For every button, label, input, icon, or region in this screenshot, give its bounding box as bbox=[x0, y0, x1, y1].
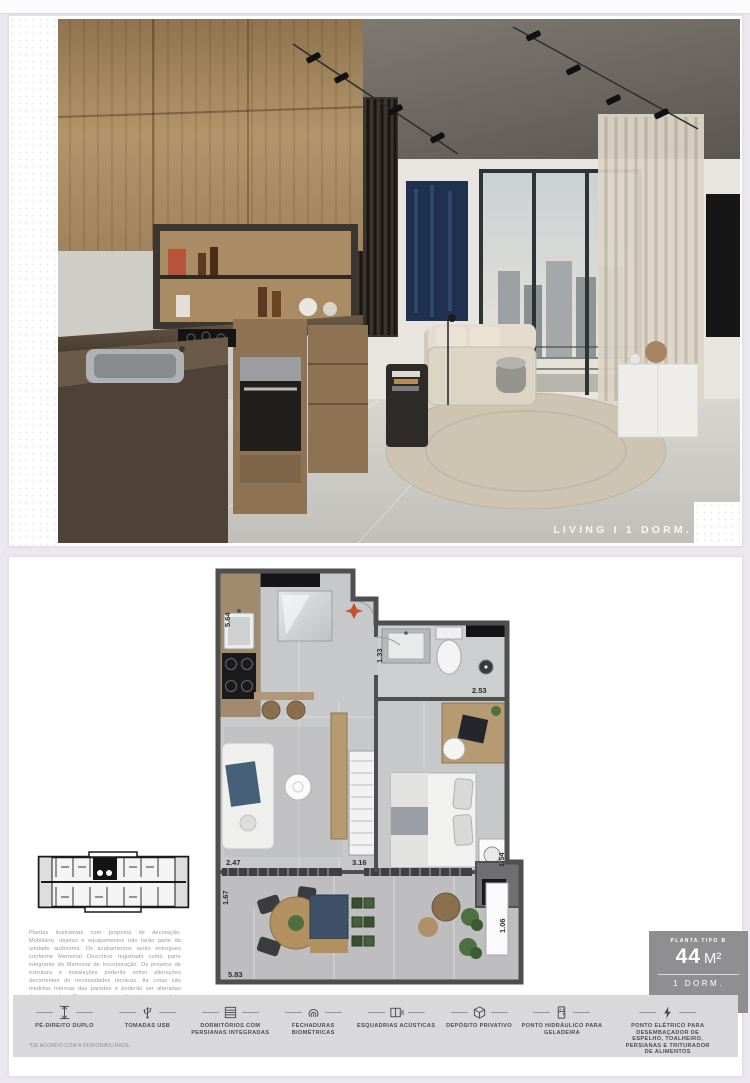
living-room-render: LIVING I 1 DORM. bbox=[58, 19, 740, 543]
cooktop-plan bbox=[222, 653, 256, 699]
area-value: 44M² bbox=[649, 946, 748, 970]
halftone-left-margin bbox=[9, 16, 58, 546]
highlighted-unit bbox=[93, 858, 117, 880]
dim-bath: 1.33 bbox=[375, 648, 384, 663]
desk-chair bbox=[443, 738, 465, 760]
amenity-ponto-eletrico: PONTO ELÉTRICO PARA DESEMBAÇADOR DE ESPE… bbox=[603, 1003, 732, 1056]
toilet bbox=[436, 627, 462, 674]
floorplan-card: 5.64 1.33 2.53 2.47 3.16 1.54 1.67 5.83 … bbox=[8, 556, 743, 1077]
gray-stool bbox=[496, 357, 526, 393]
photo-caption: LIVING I 1 DORM. bbox=[553, 524, 692, 536]
round-side-table bbox=[432, 893, 460, 921]
living-room-photo: LIVING I 1 DORM. bbox=[58, 19, 740, 543]
daybed bbox=[310, 895, 348, 953]
stool bbox=[262, 701, 280, 719]
navy-artwork bbox=[406, 181, 468, 321]
living-area bbox=[222, 713, 347, 857]
shower-niche bbox=[466, 625, 505, 637]
halftone-corner bbox=[694, 502, 740, 544]
kitchen-island bbox=[58, 337, 228, 543]
refrigerator-water-point-icon bbox=[554, 1005, 569, 1020]
amenity-persianas-integradas: DORMITÓRIOS COM PERSIANAS INTEGRADAS bbox=[189, 1003, 272, 1036]
usb-outlet-icon bbox=[140, 1005, 155, 1020]
dim-bedroom-width: 2.53 bbox=[472, 686, 487, 695]
amenity-ponto-hidraulico-geladeira: PONTO HIDRÁULICO PARA GELADEIRA bbox=[521, 1003, 604, 1036]
clay-vase bbox=[645, 341, 667, 363]
coffee-table bbox=[285, 774, 311, 800]
double-height-icon bbox=[57, 1005, 72, 1020]
dim-balcony-end: 1.06 bbox=[498, 918, 507, 933]
dorm-count-label: 1 DORM. bbox=[649, 979, 748, 988]
amenity-deposito-privativo: DEPÓSITO PRIVATIVO bbox=[438, 1003, 521, 1030]
open-shelving bbox=[153, 224, 358, 329]
amenity-tomadas-usb: TOMADAS USB bbox=[106, 1003, 189, 1030]
counter-ledge bbox=[254, 692, 314, 700]
dim-bedroom-depth: 3.16 bbox=[352, 858, 367, 867]
floor-plan: 5.64 1.33 2.53 2.47 3.16 1.54 1.67 5.83 … bbox=[214, 567, 539, 987]
dim-balcony-depth: 1.67 bbox=[221, 890, 230, 905]
private-storage-icon bbox=[472, 1005, 487, 1020]
building-key-plan bbox=[31, 849, 196, 919]
wardrobe bbox=[349, 751, 375, 855]
badge-divider bbox=[658, 974, 739, 975]
amenity-pe-direito-duplo: PÉ-DIREITO DUPLO bbox=[23, 1003, 106, 1030]
desk bbox=[442, 703, 505, 763]
dim-balcony-width: 5.83 bbox=[228, 970, 243, 979]
pillow bbox=[453, 814, 473, 845]
sofa-plan bbox=[222, 743, 274, 849]
acoustic-window-icon bbox=[389, 1005, 404, 1020]
stool bbox=[287, 701, 305, 719]
availability-footnote: *DE ACORDO COM A DISPONIBILIDADE. bbox=[29, 1043, 131, 1049]
tv-panel bbox=[706, 194, 740, 337]
oven bbox=[233, 319, 307, 514]
bed-throw bbox=[391, 807, 428, 835]
pouf bbox=[418, 917, 438, 937]
pillow bbox=[453, 778, 474, 809]
page-top-margin bbox=[0, 0, 750, 14]
dim-service: 1.54 bbox=[497, 852, 506, 867]
electric-point-icon bbox=[660, 1005, 675, 1020]
desk-plant bbox=[491, 706, 501, 716]
dim-living-width: 2.47 bbox=[226, 858, 241, 867]
living-photo-card: LIVING I 1 DORM. bbox=[8, 15, 743, 547]
tv-console bbox=[331, 713, 347, 839]
double-bed bbox=[391, 773, 476, 867]
cookbook bbox=[168, 249, 186, 275]
side-table bbox=[386, 364, 428, 447]
blue-cushion bbox=[225, 761, 261, 807]
biometric-lock-icon bbox=[306, 1005, 321, 1020]
plan-type-label: PLANTA TIPO B bbox=[649, 938, 748, 944]
dim-kitchen: 5.64 bbox=[223, 612, 232, 627]
amenity-esquadrias-acusticas: ESQUADRIAS ACÚSTICAS bbox=[355, 1003, 438, 1030]
amenity-fechaduras-biometricas: FECHADURAS BIOMÉTRICAS bbox=[272, 1003, 355, 1036]
integrated-blinds-icon bbox=[223, 1005, 238, 1020]
range-hood bbox=[260, 573, 320, 587]
